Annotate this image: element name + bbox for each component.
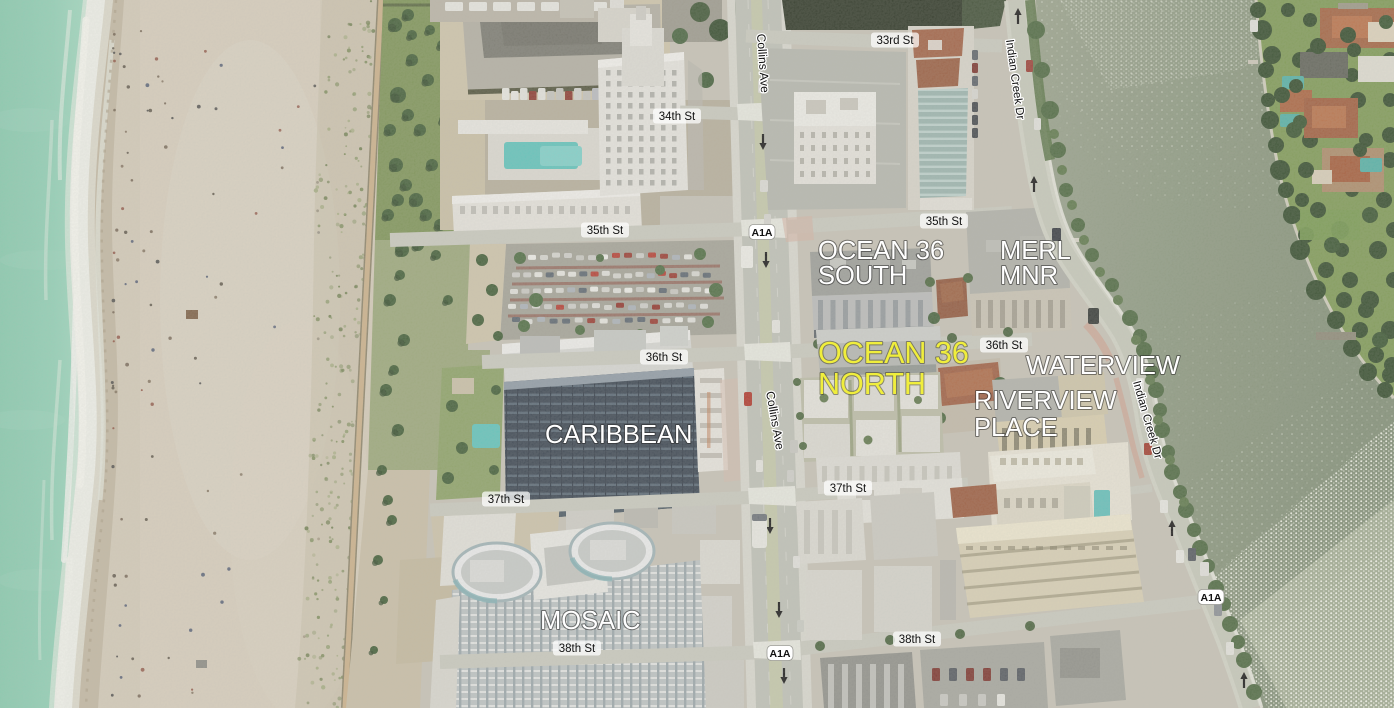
svg-text:35th St: 35th St bbox=[926, 216, 963, 228]
svg-text:A1A: A1A bbox=[751, 227, 772, 239]
svg-text:CARIBBEAN: CARIBBEAN bbox=[545, 421, 692, 449]
svg-text:38th St: 38th St bbox=[899, 634, 936, 646]
svg-text:37th St: 37th St bbox=[488, 494, 525, 506]
svg-text:A1A: A1A bbox=[1200, 592, 1221, 604]
svg-text:37th St: 37th St bbox=[830, 483, 867, 495]
svg-text:36th St: 36th St bbox=[646, 352, 683, 364]
svg-text:WATERVIEW: WATERVIEW bbox=[1026, 352, 1180, 380]
svg-text:A1A: A1A bbox=[769, 648, 790, 660]
svg-text:OCEAN 36: OCEAN 36 bbox=[818, 336, 969, 370]
svg-text:36th St: 36th St bbox=[986, 340, 1023, 352]
svg-text:MERL: MERL bbox=[1000, 237, 1071, 265]
svg-text:OCEAN 36: OCEAN 36 bbox=[818, 237, 944, 265]
svg-text:33rd St: 33rd St bbox=[876, 35, 914, 47]
svg-text:RIVERVIEW: RIVERVIEW bbox=[974, 387, 1117, 415]
svg-text:PLACE: PLACE bbox=[974, 414, 1058, 442]
svg-text:MNR: MNR bbox=[1000, 262, 1058, 290]
svg-text:MOSAIC: MOSAIC bbox=[540, 607, 641, 635]
svg-text:38th St: 38th St bbox=[559, 643, 596, 655]
svg-text:SOUTH: SOUTH bbox=[818, 262, 907, 290]
svg-text:35th St: 35th St bbox=[587, 225, 624, 237]
svg-text:NORTH: NORTH bbox=[818, 367, 926, 401]
svg-text:34th St: 34th St bbox=[659, 111, 696, 123]
